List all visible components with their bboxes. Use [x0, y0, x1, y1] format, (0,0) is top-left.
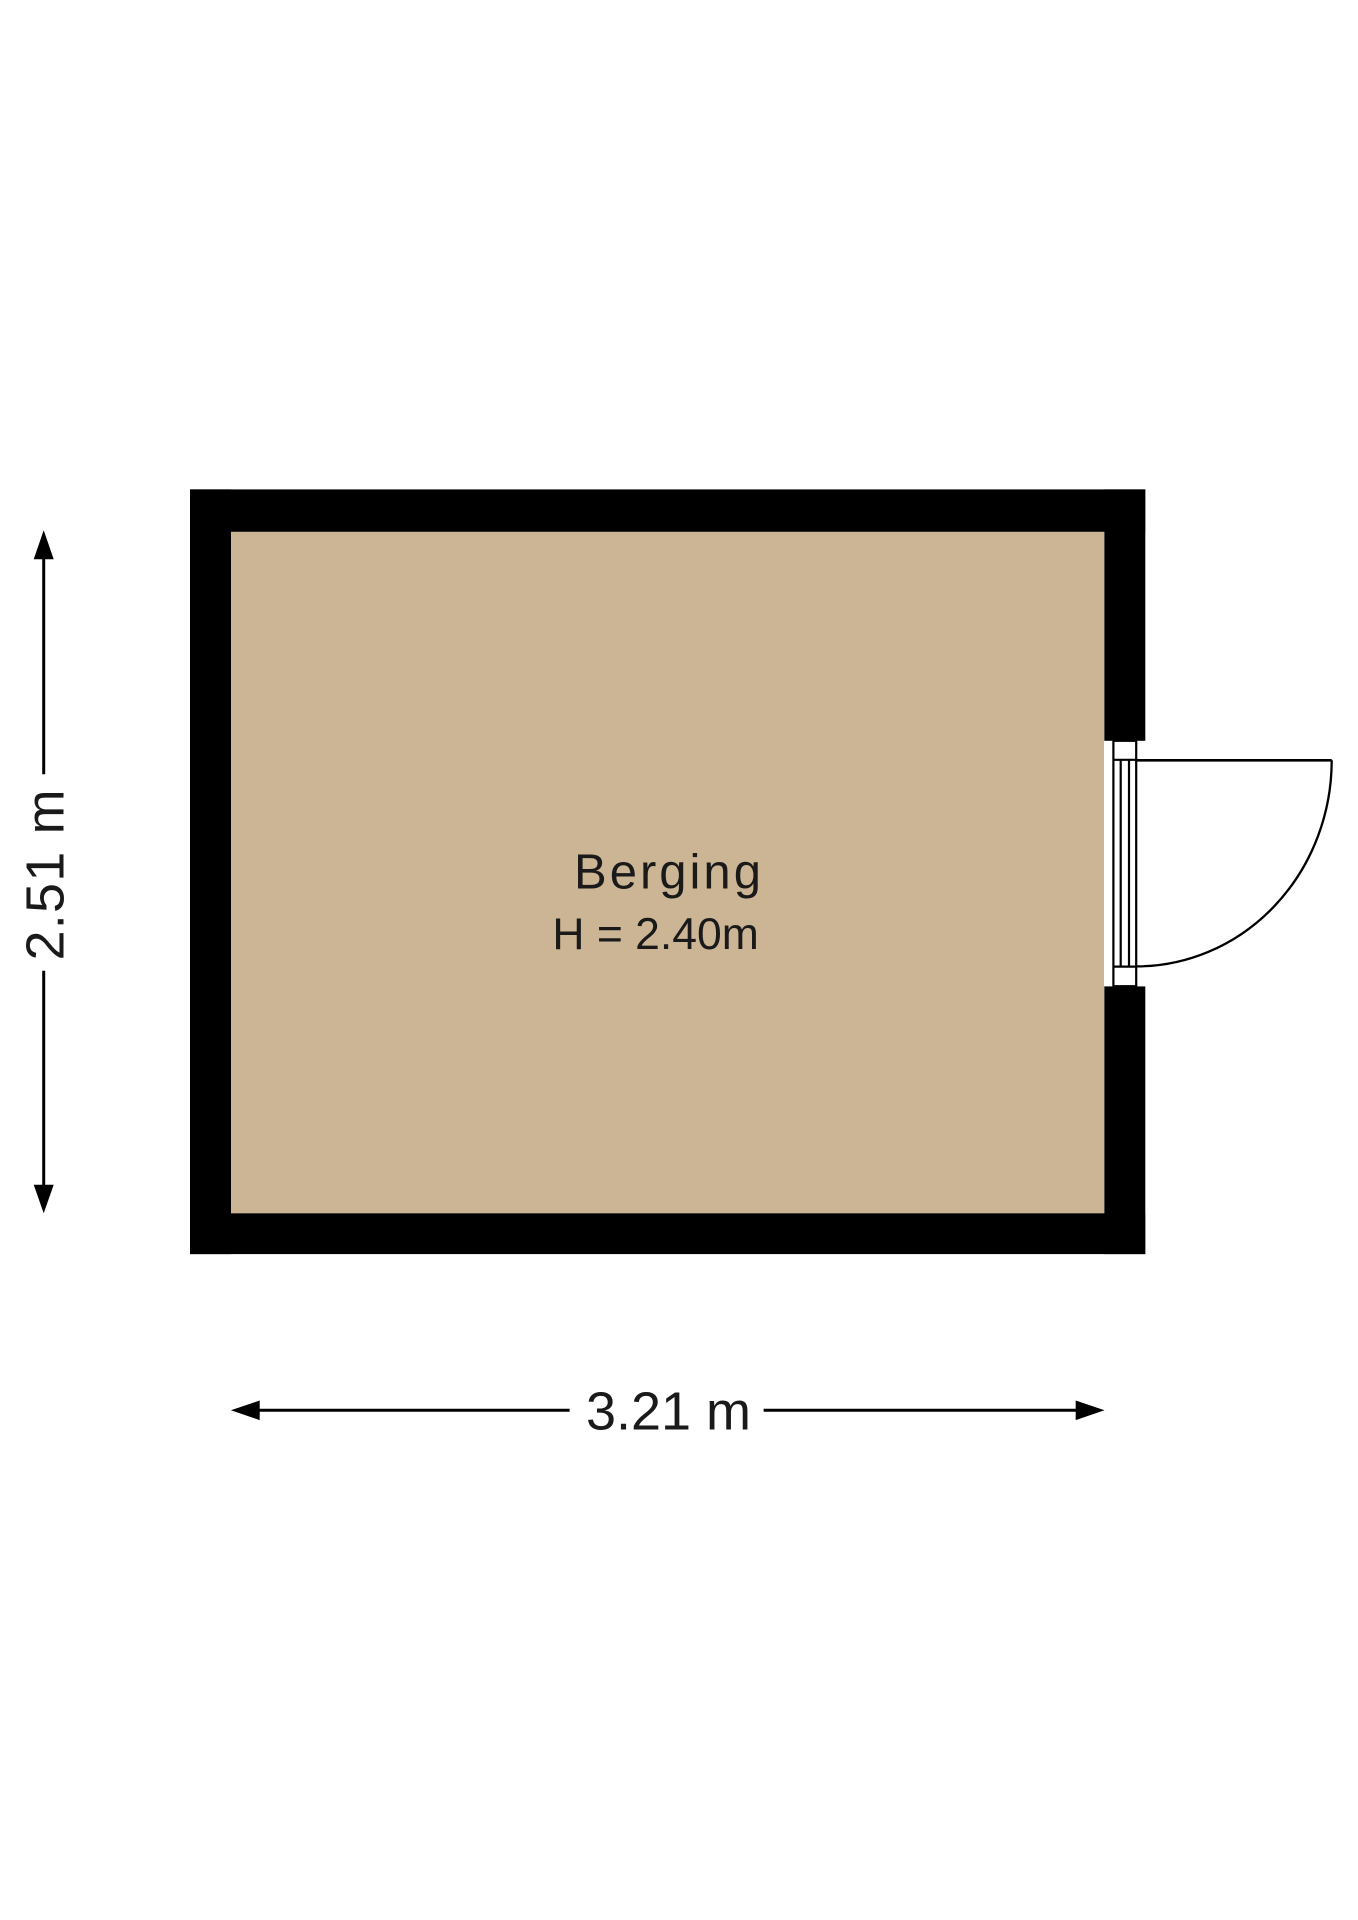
svg-text:H = 2.40m: H = 2.40m — [552, 910, 759, 959]
svg-text:Berging: Berging — [574, 846, 764, 900]
svg-text:3.21 m: 3.21 m — [586, 1382, 751, 1442]
svg-text:2.51 m: 2.51 m — [16, 788, 76, 960]
